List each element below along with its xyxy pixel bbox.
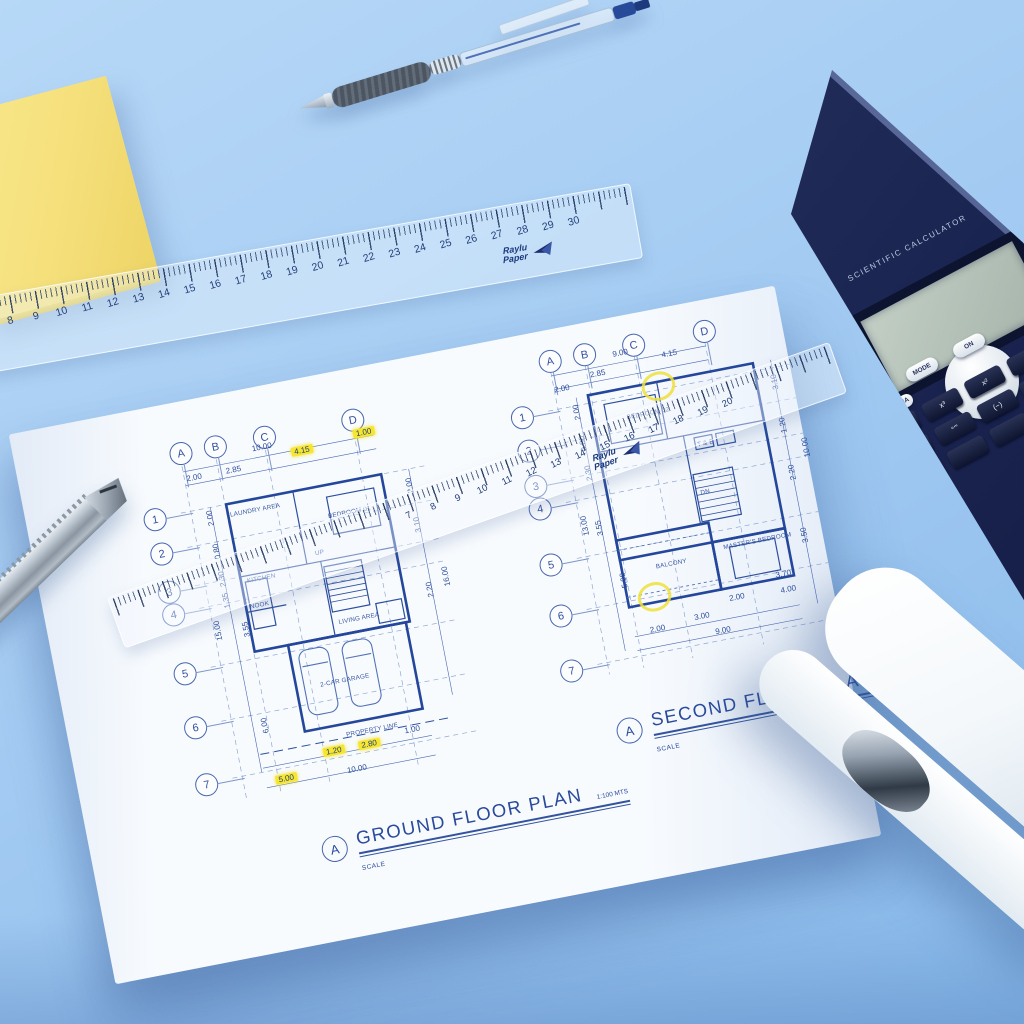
title-bubble: A bbox=[320, 834, 350, 864]
ground-plan-linework bbox=[164, 396, 499, 858]
paper-plane-logo-icon bbox=[530, 239, 557, 260]
plan-scale-label: SCALE bbox=[361, 861, 386, 872]
pen-tip bbox=[298, 96, 326, 115]
title-bubble: A bbox=[614, 715, 644, 745]
calculator-key: RCL bbox=[878, 409, 922, 445]
pen bbox=[295, 0, 659, 125]
plan-scale-value: 1:100 MTS bbox=[596, 788, 629, 801]
grid-row-bubble: 5 bbox=[172, 660, 199, 687]
pen-clicker bbox=[633, 0, 650, 11]
pen-spring bbox=[428, 53, 463, 76]
grid-row-bubble: 6 bbox=[548, 603, 575, 630]
ruler-brand: Raylu Paper bbox=[501, 238, 556, 266]
grid-row-bubble: 6 bbox=[182, 714, 209, 741]
grid-row-bubble: 7 bbox=[193, 771, 220, 798]
pen-grip bbox=[329, 59, 433, 109]
calculator-key: a b/c bbox=[891, 433, 935, 469]
desk-scene: 8910111213141516171819202122232425262728… bbox=[0, 0, 1024, 1024]
brand-line-2: Paper bbox=[503, 252, 528, 266]
calculator-key: MODE bbox=[903, 355, 940, 384]
ruler-brand-text: Raylu Paper bbox=[502, 243, 528, 266]
grid-row-bubble: 1 bbox=[142, 506, 169, 533]
calculator-alpha-key: ALPHA bbox=[883, 392, 916, 418]
grid-row-bubble: 7 bbox=[558, 658, 585, 685]
plan-scale-label: SCALE bbox=[656, 742, 681, 753]
calculator-key bbox=[903, 457, 947, 493]
grid-row-bubble: 5 bbox=[538, 551, 565, 578]
ground-floor-plan: ABCD 1234567 10.002.002.854.151.002.000.… bbox=[164, 396, 499, 858]
calculator-key: ON bbox=[950, 331, 987, 360]
grid-row-bubble: 1 bbox=[509, 404, 536, 431]
grid-row-bubble: 2 bbox=[148, 541, 175, 568]
